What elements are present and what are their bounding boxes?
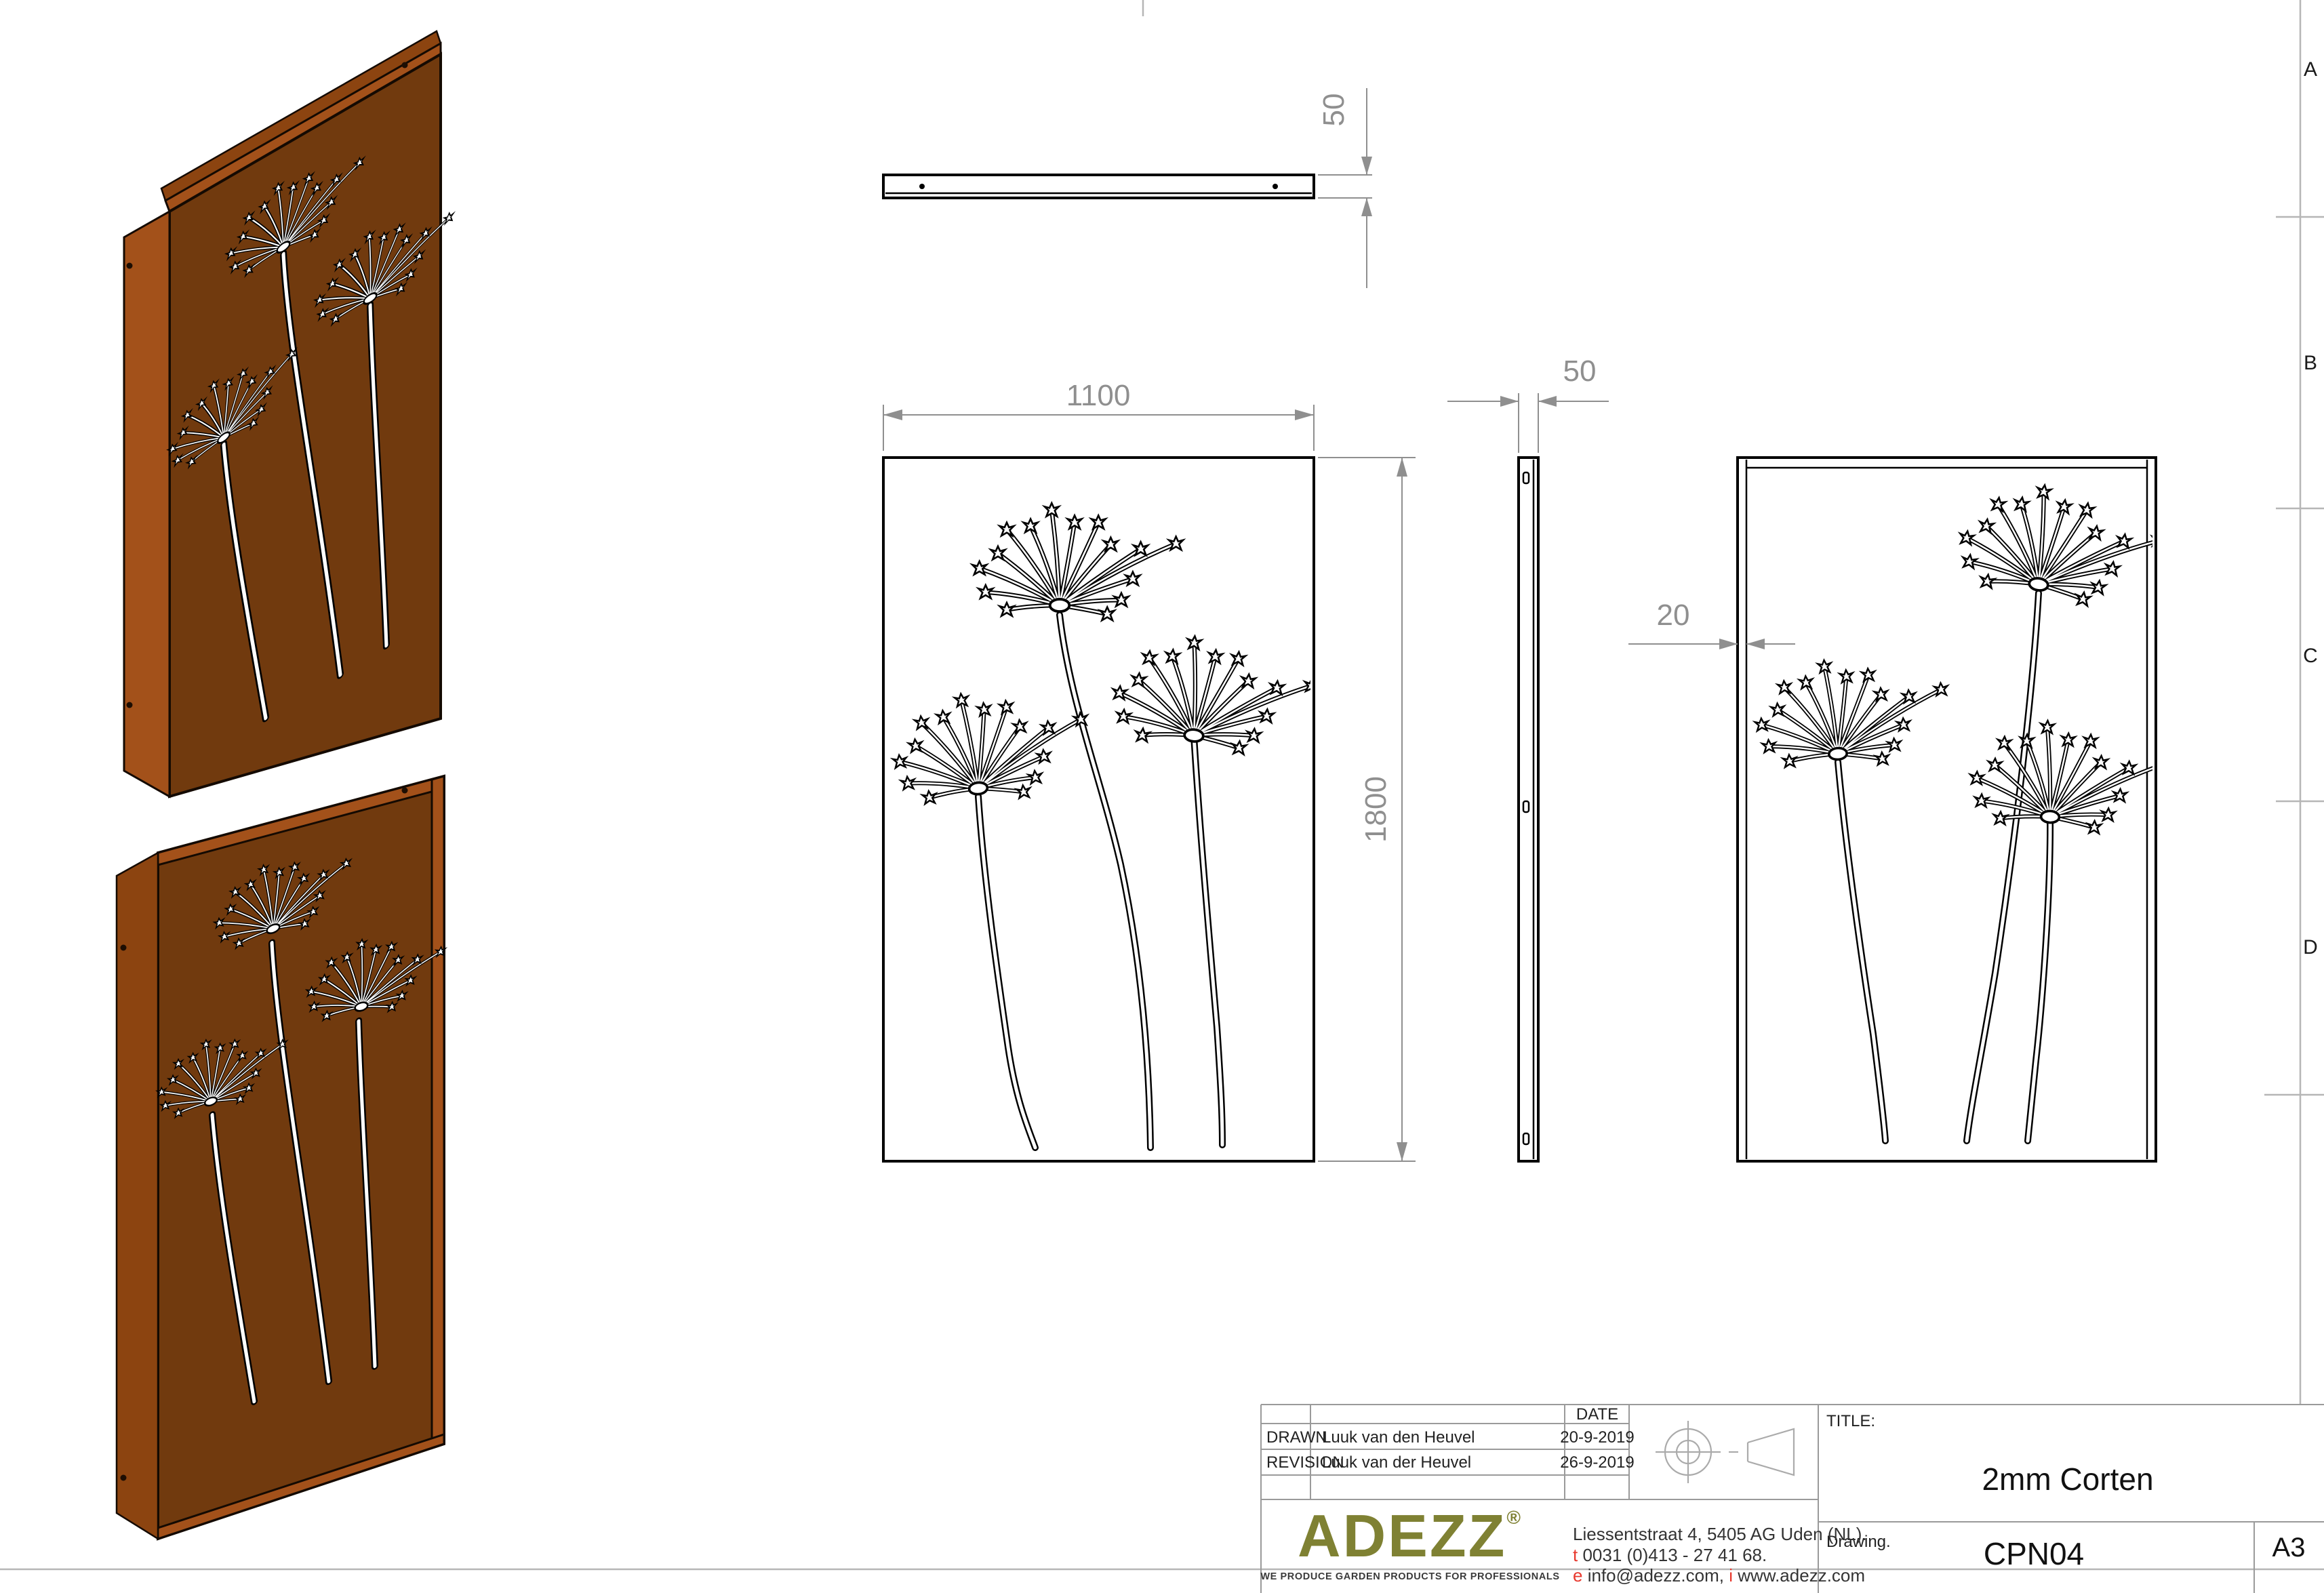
dim-width-1100: 1100 bbox=[883, 379, 1314, 451]
mount-hole bbox=[121, 1475, 127, 1481]
drawing-sheet: A B C D bbox=[0, 0, 2324, 1593]
mount-hole bbox=[127, 263, 133, 269]
mount-hole bbox=[127, 702, 133, 708]
panel-left-edge bbox=[117, 853, 158, 1539]
dim-label: 1800 bbox=[1359, 776, 1393, 843]
zone-letter-a: A bbox=[2304, 58, 2317, 81]
dim-label: 50 bbox=[1317, 94, 1350, 127]
mount-hole bbox=[402, 62, 408, 68]
drawing-number: CPN04 bbox=[1984, 1536, 2084, 1571]
email-web-line: e info@adezz.com, i www.adezz.com bbox=[1573, 1565, 1865, 1586]
dim-side-50: 50 bbox=[1447, 355, 1609, 453]
date-column-header: DATE bbox=[1576, 1405, 1618, 1424]
dim-label: 20 bbox=[1657, 599, 1690, 632]
mount-hole bbox=[402, 788, 408, 794]
panel-left-edge bbox=[124, 211, 169, 796]
side-view: 50 bbox=[1447, 355, 1609, 1161]
back-view: 20 bbox=[1628, 458, 2171, 1161]
sheet-size: A3 bbox=[2272, 1533, 2306, 1562]
zone-letter-c: C bbox=[2303, 645, 2318, 667]
title-block: DATE DRAWN Luuk van den Heuvel 20-9-2019… bbox=[1260, 1405, 2324, 1593]
dim-label: 50 bbox=[1563, 355, 1597, 388]
dim-top-50: 50 bbox=[1317, 88, 1372, 288]
dim-height-1800: 1800 bbox=[1318, 458, 1416, 1161]
panel-rim-right bbox=[432, 776, 444, 1448]
top-view: 50 bbox=[883, 88, 1372, 288]
revision-name: Luuk van der Heuvel bbox=[1322, 1453, 1471, 1472]
drawn-date: 20-9-2019 bbox=[1560, 1428, 1634, 1447]
mount-hole bbox=[121, 945, 127, 951]
company-address: Liessentstraat 4, 5405 AG Uden (NL). t 0… bbox=[1573, 1524, 1867, 1586]
dim-label: 1100 bbox=[1066, 379, 1131, 412]
mount-hole bbox=[1273, 184, 1278, 189]
logo-text: ADEZZ® bbox=[1298, 1502, 1523, 1569]
drawn-name: Luuk van den Heuvel bbox=[1322, 1428, 1475, 1447]
technical-drawing-canvas: A B C D bbox=[0, 0, 2324, 1593]
logo-tagline: WE PRODUCE GARDEN PRODUCTS FOR PROFESSIO… bbox=[1260, 1571, 1559, 1582]
mount-hole bbox=[919, 184, 925, 189]
front-view: 1100 1800 bbox=[883, 379, 1416, 1161]
zone-letter-d: D bbox=[2303, 936, 2318, 959]
company-logo: ADEZZ® WE PRODUCE GARDEN PRODUCTS FOR PR… bbox=[1260, 1502, 1559, 1582]
iso-panel-front bbox=[124, 31, 456, 796]
drawn-label: DRAWN bbox=[1266, 1428, 1327, 1447]
phone-line: t 0031 (0)413 - 27 41 68. bbox=[1573, 1545, 1767, 1565]
projection-symbol-icon bbox=[1656, 1421, 1794, 1483]
drawing-title: 2mm Corten bbox=[1982, 1461, 2153, 1497]
iso-panel-back bbox=[117, 776, 447, 1539]
zone-letter-b: B bbox=[2304, 352, 2317, 374]
revision-date: 26-9-2019 bbox=[1560, 1453, 1634, 1472]
address-line: Liessentstraat 4, 5405 AG Uden (NL). bbox=[1573, 1524, 1867, 1544]
title-label: TITLE: bbox=[1826, 1412, 1875, 1430]
